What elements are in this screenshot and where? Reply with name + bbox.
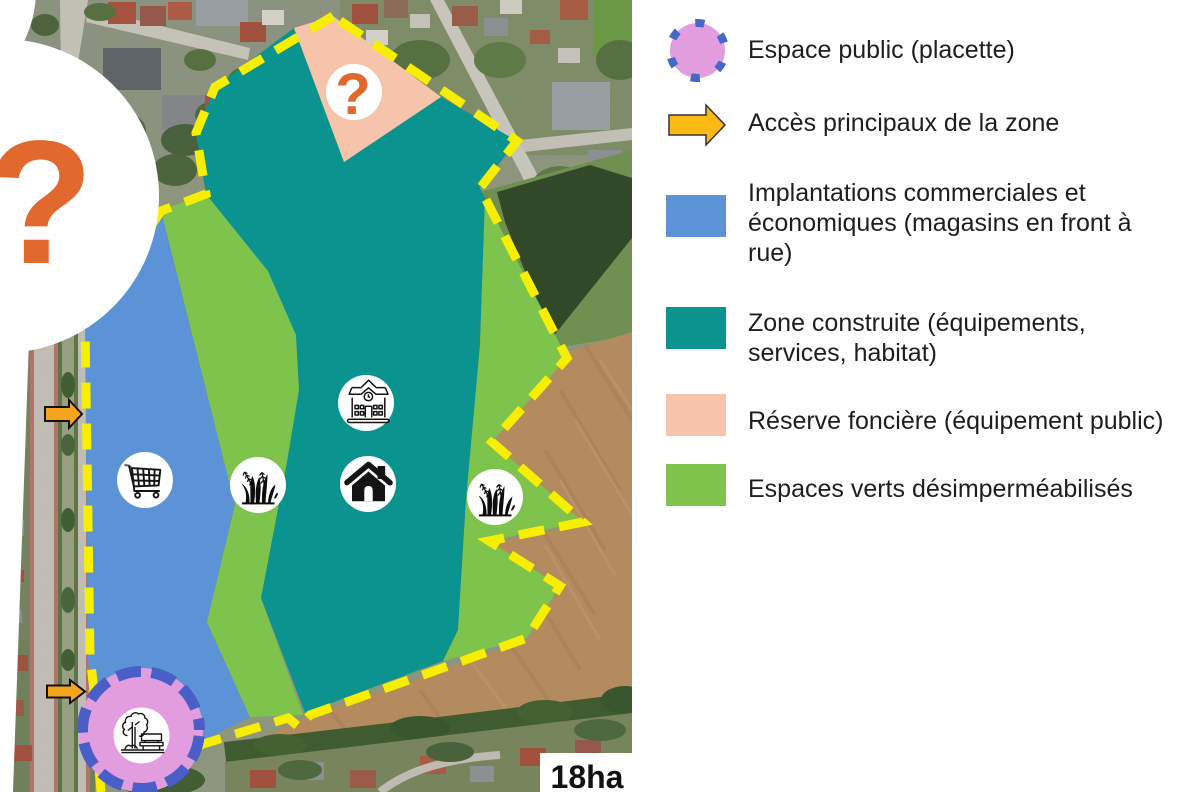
svg-text:?: ? [0, 105, 94, 301]
svg-text:?: ? [335, 62, 370, 127]
svg-text:18ha: 18ha [551, 759, 624, 792]
